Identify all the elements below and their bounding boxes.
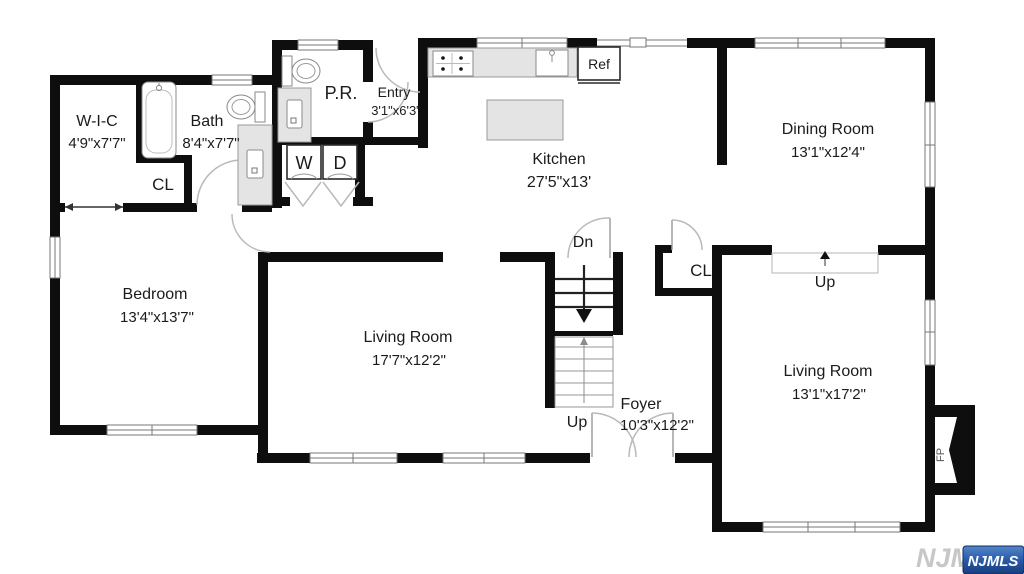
washer-label: W: [296, 153, 313, 173]
room-label-bath: Bath: [191, 113, 224, 130]
stairs-up-label: Up: [567, 414, 588, 431]
window: [310, 453, 397, 463]
room-label-foyer: Foyer: [621, 396, 663, 413]
powder-room-label: P.R.: [325, 83, 358, 103]
njmls-logo: NJMLS: [963, 546, 1024, 574]
closet-label: CL: [690, 261, 712, 280]
staircase: [555, 265, 613, 407]
window: [925, 300, 935, 365]
window: [298, 40, 338, 50]
fireplace-label: FP: [935, 448, 947, 462]
closet-door-arc: [672, 220, 702, 250]
room-label-living-left: Living Room: [364, 329, 453, 346]
floor-plan: W-I-C 4'9"x7'7" Bath 8'4"x7'7" CL P.R. E…: [0, 0, 1024, 574]
sink-icon: [536, 50, 568, 76]
window: [212, 75, 252, 85]
pass-through-opening: [597, 38, 687, 47]
room-label-dining: Dining Room: [782, 121, 874, 138]
toilet-icon: [282, 56, 320, 86]
window: [50, 237, 60, 278]
room-dims-foyer: 10'3"x12'2": [620, 417, 694, 434]
dryer-label: D: [334, 153, 347, 173]
room-label-bedroom: Bedroom: [123, 286, 188, 303]
step-landing: [772, 251, 878, 273]
room-label-entry: Entry: [378, 84, 411, 100]
njmls-logo-text: NJMLS: [968, 553, 1019, 570]
window: [477, 38, 567, 48]
sink-vanity-icon: [278, 88, 311, 142]
toilet-icon: [227, 92, 265, 122]
bathtub-icon: [142, 82, 176, 158]
kitchen-island: [487, 100, 563, 140]
sink-vanity-icon: [238, 125, 272, 205]
room-dims-dining: 13'1"x12'4": [791, 144, 865, 161]
down-arrow-icon: [576, 309, 592, 323]
window: [763, 522, 900, 532]
room-dims-entry: 3'1"x6'3": [371, 103, 421, 118]
bath-door-arc: [197, 160, 242, 205]
room-dims-wic: 4'9"x7'7": [68, 135, 125, 152]
room-dims-bath: 8'4"x7'7": [182, 135, 239, 152]
window: [755, 38, 885, 48]
closet-label: CL: [152, 175, 174, 194]
landing-up-label: Up: [815, 274, 836, 291]
room-dims-living-left: 17'7"x12'2": [372, 352, 446, 369]
fridge-label: Ref: [588, 56, 610, 72]
watermark: NJMLS NJMLS: [916, 543, 1024, 574]
room-label-living-right: Living Room: [784, 363, 873, 380]
room-dims-kitchen: 27'5"x13': [527, 174, 591, 191]
bedroom-door-arc: [232, 214, 270, 252]
room-label-kitchen: Kitchen: [532, 151, 585, 168]
bifold-door: [285, 182, 321, 206]
stairs-down-label: Dn: [573, 234, 593, 251]
window: [107, 425, 197, 435]
up-arrow-icon: [580, 337, 588, 345]
stove-icon: [433, 51, 473, 76]
room-label-wic: W-I-C: [76, 113, 117, 130]
fireplace-icon: [925, 405, 975, 495]
window: [925, 102, 935, 187]
room-dims-bedroom: 13'4"x13'7": [120, 309, 194, 326]
pocket-door: [65, 203, 123, 211]
window: [443, 453, 525, 463]
room-dims-living-right: 13'1"x17'2": [792, 386, 866, 403]
